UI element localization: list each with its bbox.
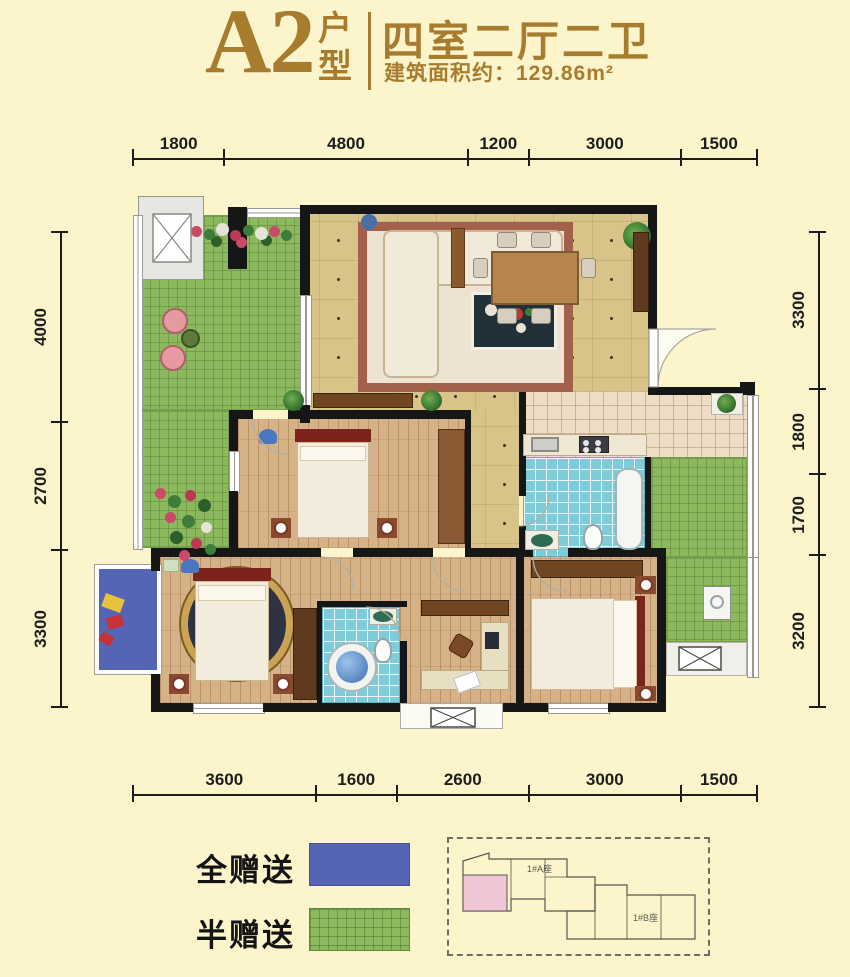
- window-kitchen-right: [747, 395, 759, 559]
- dimension-value: 1200: [479, 134, 517, 154]
- wall-bedroom2-top: [238, 410, 253, 419]
- dimension-value: 3300: [31, 610, 51, 648]
- bookshelf: [421, 600, 509, 616]
- elevator-shaft: [138, 196, 204, 280]
- wall-masterbath-right: [400, 641, 407, 703]
- dimension-chain-left: 400027003300: [30, 232, 60, 707]
- window-master: [193, 703, 265, 714]
- dimension-value: 1500: [700, 134, 738, 154]
- building-a-label: 1#A座: [527, 863, 552, 874]
- plant-icon: [421, 390, 442, 411]
- wall-masterbath-left: [317, 607, 322, 703]
- header: A2 户型 四室二厅二卫 建筑面积约：129.86m²: [0, 0, 850, 110]
- dimension-segment: 2700: [30, 422, 62, 550]
- dimension-segment: 1500: [681, 128, 757, 160]
- wall-bedroom3-left: [516, 557, 524, 703]
- wall-bottom: [503, 703, 548, 712]
- wall-master-top: [151, 548, 321, 557]
- dimension-segment: 1200: [468, 128, 529, 160]
- wall-masterbath-top: [317, 601, 407, 607]
- dimension-segment: 1600: [316, 764, 397, 796]
- wall-bottom: [608, 703, 657, 712]
- patio-table: [181, 329, 200, 348]
- nightstand: [377, 518, 397, 538]
- wall-band: [468, 548, 533, 557]
- bookshelf: [531, 560, 643, 578]
- legend-label-full-gift: 全赠送: [196, 845, 295, 890]
- tv-cabinet: [313, 393, 413, 408]
- nightstand: [271, 518, 291, 538]
- wall-band: [568, 548, 666, 557]
- window-balcony-right: [747, 557, 759, 678]
- window-bedroom2: [229, 451, 240, 493]
- nightstand: [635, 576, 656, 594]
- chair: [259, 429, 277, 444]
- bed: [531, 598, 615, 690]
- dimension-value: 4000: [31, 308, 51, 346]
- decor-dots: [485, 304, 497, 316]
- bed-headboard: [193, 568, 271, 581]
- unit-code: A2: [205, 0, 313, 94]
- wall: [300, 205, 310, 295]
- dining-chair: [497, 308, 517, 324]
- dimension-segment: 3600: [133, 764, 316, 796]
- mat: [163, 559, 179, 572]
- wall-bottom: [151, 703, 193, 712]
- dimension-value: 1500: [700, 770, 738, 790]
- bed-pillow: [613, 600, 637, 688]
- wall-bedroom2-right: [465, 410, 471, 557]
- dimension-segment: 4800: [224, 128, 468, 160]
- wall-bath1-right: [645, 457, 651, 557]
- dimension-value: 1800: [160, 134, 198, 154]
- dimension-value: 1800: [789, 413, 809, 451]
- dimension-chain-bottom: 36001600260030001500: [133, 764, 757, 794]
- bay-window-gift: [95, 565, 161, 674]
- legend-swatch-half-gift: [309, 908, 410, 951]
- dining-chair: [531, 232, 551, 248]
- wardrobe: [293, 608, 317, 700]
- utility-ledge: [666, 642, 747, 676]
- balcony-garden-right-mid: [651, 457, 747, 557]
- bathtub: [615, 468, 643, 550]
- dimension-value: 4800: [327, 134, 365, 154]
- window: [247, 208, 302, 218]
- wall-master-left: [151, 548, 160, 571]
- dining-table: [491, 251, 579, 305]
- dining-chair: [473, 258, 488, 278]
- corridor-floor: [471, 410, 519, 557]
- toilet: [583, 524, 603, 550]
- console-table: [451, 228, 465, 288]
- nightstand: [273, 674, 293, 694]
- balcony-garden-left-lower: [140, 410, 229, 548]
- dining-chair: [581, 258, 596, 278]
- wardrobe: [438, 429, 465, 544]
- bed-headboard: [295, 429, 371, 442]
- wall-bedroom3-right: [657, 548, 666, 712]
- tall-cabinet: [633, 232, 649, 312]
- legend-swatch-full-gift: [309, 843, 410, 886]
- area-text: 建筑面积约：129.86m²: [384, 57, 614, 87]
- dimension-segment: 4000: [30, 232, 62, 422]
- plant-icon: [717, 394, 736, 413]
- dimension-segment: 3000: [529, 764, 681, 796]
- dimension-segment: 2600: [397, 764, 529, 796]
- dimension-segment: 3300: [30, 550, 62, 707]
- basin: [373, 611, 393, 622]
- jacuzzi-water: [336, 651, 368, 683]
- dimension-value: 2600: [444, 770, 482, 790]
- building-b-label: 1#B座: [633, 912, 658, 923]
- computer: [485, 632, 499, 649]
- wall-bottom: [263, 703, 400, 712]
- dimension-value: 3000: [586, 134, 624, 154]
- shaft-ledge: [400, 703, 503, 729]
- nightstand: [635, 686, 656, 701]
- chair: [181, 559, 199, 573]
- window-bedroom3: [548, 703, 610, 714]
- dimension-value: 1600: [337, 770, 375, 790]
- entry-door: [649, 329, 716, 387]
- dimension-value: 3200: [789, 612, 809, 650]
- dimension-value: 3300: [789, 291, 809, 329]
- wall-bedroom2-left: [229, 410, 238, 451]
- highlighted-unit: [463, 875, 507, 911]
- window-balcony-outer: [133, 215, 143, 550]
- unit-type-label: 户型: [318, 10, 358, 86]
- wall-dining-right: [648, 205, 657, 329]
- dimension-value: 2700: [31, 467, 51, 505]
- bed-pillow: [300, 446, 366, 461]
- dimension-segment: 3200: [788, 555, 820, 707]
- wall-bedroom2-top: [288, 410, 469, 419]
- side-table: [361, 214, 377, 230]
- dimension-segment: 3300: [788, 232, 820, 389]
- dimension-segment: 1500: [681, 764, 757, 796]
- dimension-chain-right: 3300180017003200: [788, 232, 818, 707]
- key-plan-drawing: 1#A座 1#B座: [449, 839, 708, 954]
- sofa-chaise: [383, 230, 439, 378]
- dimension-value: 1700: [789, 496, 809, 534]
- dimension-segment: 1800: [133, 128, 224, 160]
- wall-top: [300, 205, 657, 214]
- plant-icon: [283, 390, 304, 411]
- wall-band: [400, 548, 433, 557]
- window-living-balcony: [300, 295, 312, 407]
- kitchen-sink: [531, 437, 559, 452]
- site-key-plan: 1#A座 1#B座: [447, 837, 710, 956]
- washer-door: [710, 595, 724, 609]
- flower-bed: [155, 488, 166, 499]
- nightstand: [169, 674, 189, 694]
- flower-bed: [191, 226, 202, 237]
- dimension-segment: 3000: [529, 128, 681, 160]
- dimension-value: 3000: [586, 770, 624, 790]
- bed-pillow: [198, 585, 266, 601]
- wall: [228, 207, 247, 269]
- dimension-value: 3600: [205, 770, 243, 790]
- wall-master-top: [353, 548, 400, 557]
- dimension-segment: 1800: [788, 389, 820, 475]
- dimension-chain-top: 18004800120030001500: [133, 128, 757, 158]
- dining-chair: [531, 308, 551, 324]
- legend-label-half-gift: 半赠送: [196, 910, 295, 955]
- floor-plan: [133, 196, 757, 756]
- dining-chair: [497, 232, 517, 248]
- stove-burners: [583, 440, 589, 446]
- header-divider: [368, 12, 371, 90]
- toilet: [374, 638, 392, 663]
- basin: [531, 534, 553, 547]
- patio-chair: [160, 345, 186, 371]
- dimension-segment: 1700: [788, 474, 820, 555]
- floorplan-page: A2 户型 四室二厅二卫 建筑面积约：129.86m² 180048001200…: [0, 0, 850, 977]
